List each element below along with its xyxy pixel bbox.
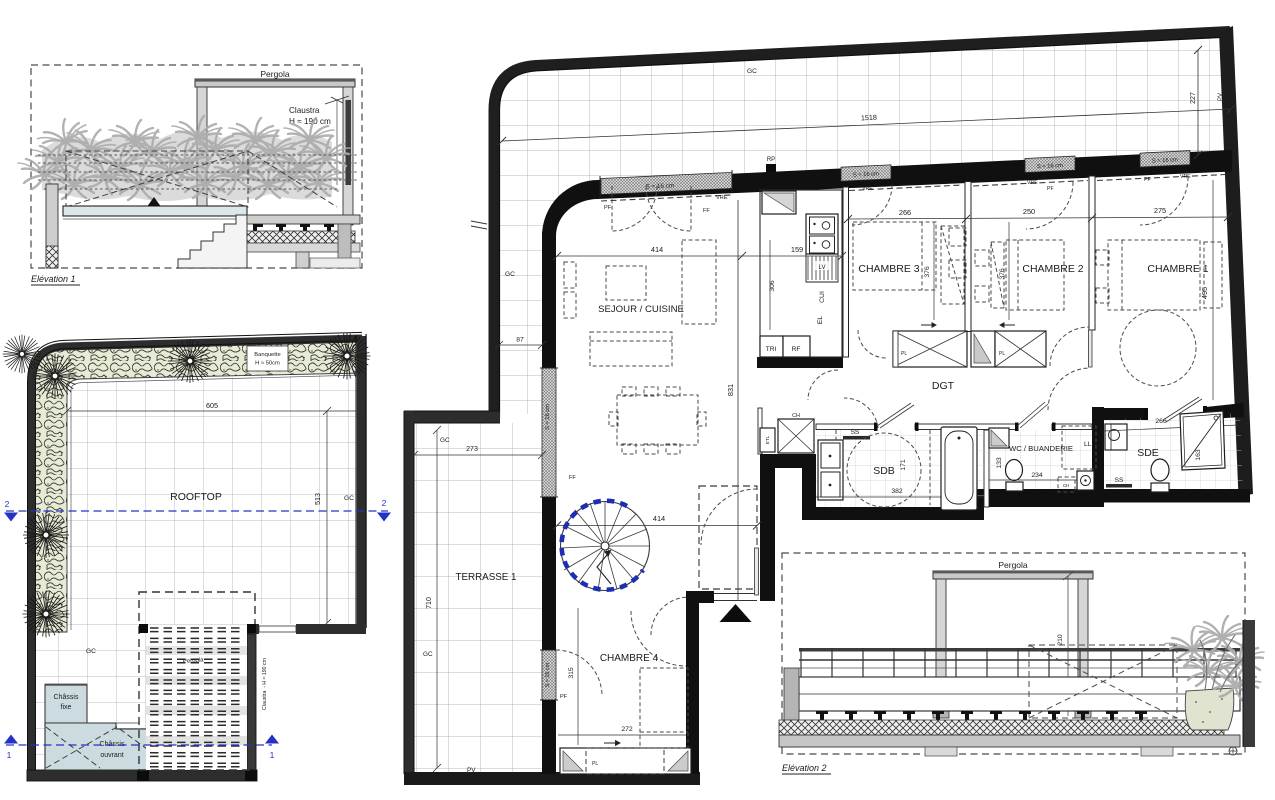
svg-text:SDE: SDE <box>1137 447 1159 459</box>
svg-text:ROOFTOP: ROOFTOP <box>170 491 222 503</box>
svg-text:FF: FF <box>703 208 710 214</box>
svg-text:SEJOUR / CUISINE: SEJOUR / CUISINE <box>598 304 684 315</box>
svg-text:Pergola: Pergola <box>260 69 290 79</box>
svg-text:133: 133 <box>996 457 1003 469</box>
svg-text:RP: RP <box>767 157 775 163</box>
svg-text:1: 1 <box>7 750 12 760</box>
svg-text:Banquette: Banquette <box>254 352 280 358</box>
svg-text:GC: GC <box>440 437 450 444</box>
svg-text:VRE: VRE <box>862 186 873 192</box>
svg-text:2: 2 <box>382 498 387 508</box>
svg-text:272: 272 <box>621 726 633 733</box>
svg-text:SDB: SDB <box>873 465 895 477</box>
svg-text:PF: PF <box>560 694 568 700</box>
svg-text:ouvrant: ouvrant <box>100 752 123 759</box>
svg-text:LV: LV <box>819 265 826 271</box>
svg-text:RF: RF <box>792 346 801 353</box>
svg-text:CUI: CUI <box>819 291 826 303</box>
svg-text:171: 171 <box>900 459 907 471</box>
svg-text:PL: PL <box>999 351 1005 357</box>
svg-text:PF: PF <box>1144 177 1151 183</box>
svg-text:TRI: TRI <box>766 346 777 353</box>
svg-text:VRE: VRE <box>1027 180 1038 186</box>
svg-text:1: 1 <box>270 750 275 760</box>
svg-text:VRE: VRE <box>1180 174 1191 180</box>
svg-text:Pergola: Pergola <box>998 560 1028 570</box>
svg-text:227: 227 <box>1190 92 1197 104</box>
svg-text:PV: PV <box>1218 93 1224 101</box>
svg-text:Elévation 2: Elévation 2 <box>782 763 827 773</box>
svg-text:306: 306 <box>769 280 776 292</box>
svg-text:163: 163 <box>1195 449 1202 461</box>
svg-text:S ≈ 16 cm: S ≈ 16 cm <box>545 662 551 687</box>
svg-text:376: 376 <box>999 268 1006 280</box>
svg-text:1518: 1518 <box>861 113 877 123</box>
svg-text:513: 513 <box>313 493 322 505</box>
svg-text:PF: PF <box>604 205 612 211</box>
svg-text:CHAMBRE 3: CHAMBRE 3 <box>858 263 919 275</box>
svg-text:315: 315 <box>568 667 575 679</box>
svg-text:234: 234 <box>1031 472 1043 479</box>
svg-text:266: 266 <box>899 208 911 217</box>
svg-text:PV: PV <box>467 767 476 774</box>
svg-text:CH: CH <box>792 413 800 419</box>
svg-text:VRE: VRE <box>716 195 728 201</box>
svg-text:PL: PL <box>901 351 907 357</box>
svg-text:SS: SS <box>1115 477 1124 484</box>
svg-text:376: 376 <box>924 266 931 278</box>
svg-text:250: 250 <box>1023 207 1035 216</box>
svg-text:831: 831 <box>726 384 735 396</box>
svg-text:Claustra - H ≈ 190 cm: Claustra - H ≈ 190 cm <box>262 658 268 710</box>
svg-text:CH: CH <box>1063 483 1069 488</box>
svg-text:fixe: fixe <box>61 704 72 711</box>
svg-text:414: 414 <box>653 514 665 523</box>
svg-text:FF: FF <box>569 475 576 481</box>
svg-text:S ≈ 16 cm: S ≈ 16 cm <box>1152 157 1178 164</box>
svg-text:GC: GC <box>344 495 354 502</box>
svg-text:GC: GC <box>423 651 433 658</box>
svg-text:414: 414 <box>651 245 663 254</box>
svg-text:S ≈ 16 cm: S ≈ 16 cm <box>545 404 551 430</box>
svg-text:CHAMBRE 2: CHAMBRE 2 <box>1022 263 1083 275</box>
svg-text:87: 87 <box>516 337 524 344</box>
svg-text:WC / BUANDERIE: WC / BUANDERIE <box>1009 444 1073 453</box>
svg-text:S ≈ 16 cm: S ≈ 16 cm <box>1037 163 1063 170</box>
svg-text:273: 273 <box>466 446 478 453</box>
svg-text:GC: GC <box>747 68 757 75</box>
svg-text:159: 159 <box>791 245 803 254</box>
svg-text:LL: LL <box>1084 441 1092 448</box>
svg-text:275: 275 <box>1154 206 1166 215</box>
svg-text:EL: EL <box>817 316 824 325</box>
svg-text:H ≈ 50cm: H ≈ 50cm <box>255 361 280 367</box>
svg-text:210: 210 <box>1057 634 1064 646</box>
svg-text:710: 710 <box>426 597 433 609</box>
svg-text:GC: GC <box>505 271 515 278</box>
svg-text:Claustra: Claustra <box>289 106 320 115</box>
svg-text:PL: PL <box>592 761 598 767</box>
svg-text:CHAMBRE 4: CHAMBRE 4 <box>600 653 659 664</box>
svg-text:S ≈ 16 cm: S ≈ 16 cm <box>853 171 879 178</box>
svg-text:Elévation 1: Elévation 1 <box>31 274 76 284</box>
svg-text:GC: GC <box>86 648 96 655</box>
svg-text:2: 2 <box>5 499 10 509</box>
svg-text:Châssis: Châssis <box>54 694 79 701</box>
svg-text:TERRASSE 1: TERRASSE 1 <box>456 572 517 583</box>
svg-text:ETL: ETL <box>765 435 770 444</box>
svg-text:SS: SS <box>851 429 860 436</box>
svg-text:S ≈ 16 cm: S ≈ 16 cm <box>645 182 674 190</box>
svg-text:382: 382 <box>891 488 903 495</box>
svg-text:605: 605 <box>206 401 218 410</box>
svg-text:DGT: DGT <box>932 380 955 392</box>
svg-text:PF: PF <box>1047 186 1054 192</box>
